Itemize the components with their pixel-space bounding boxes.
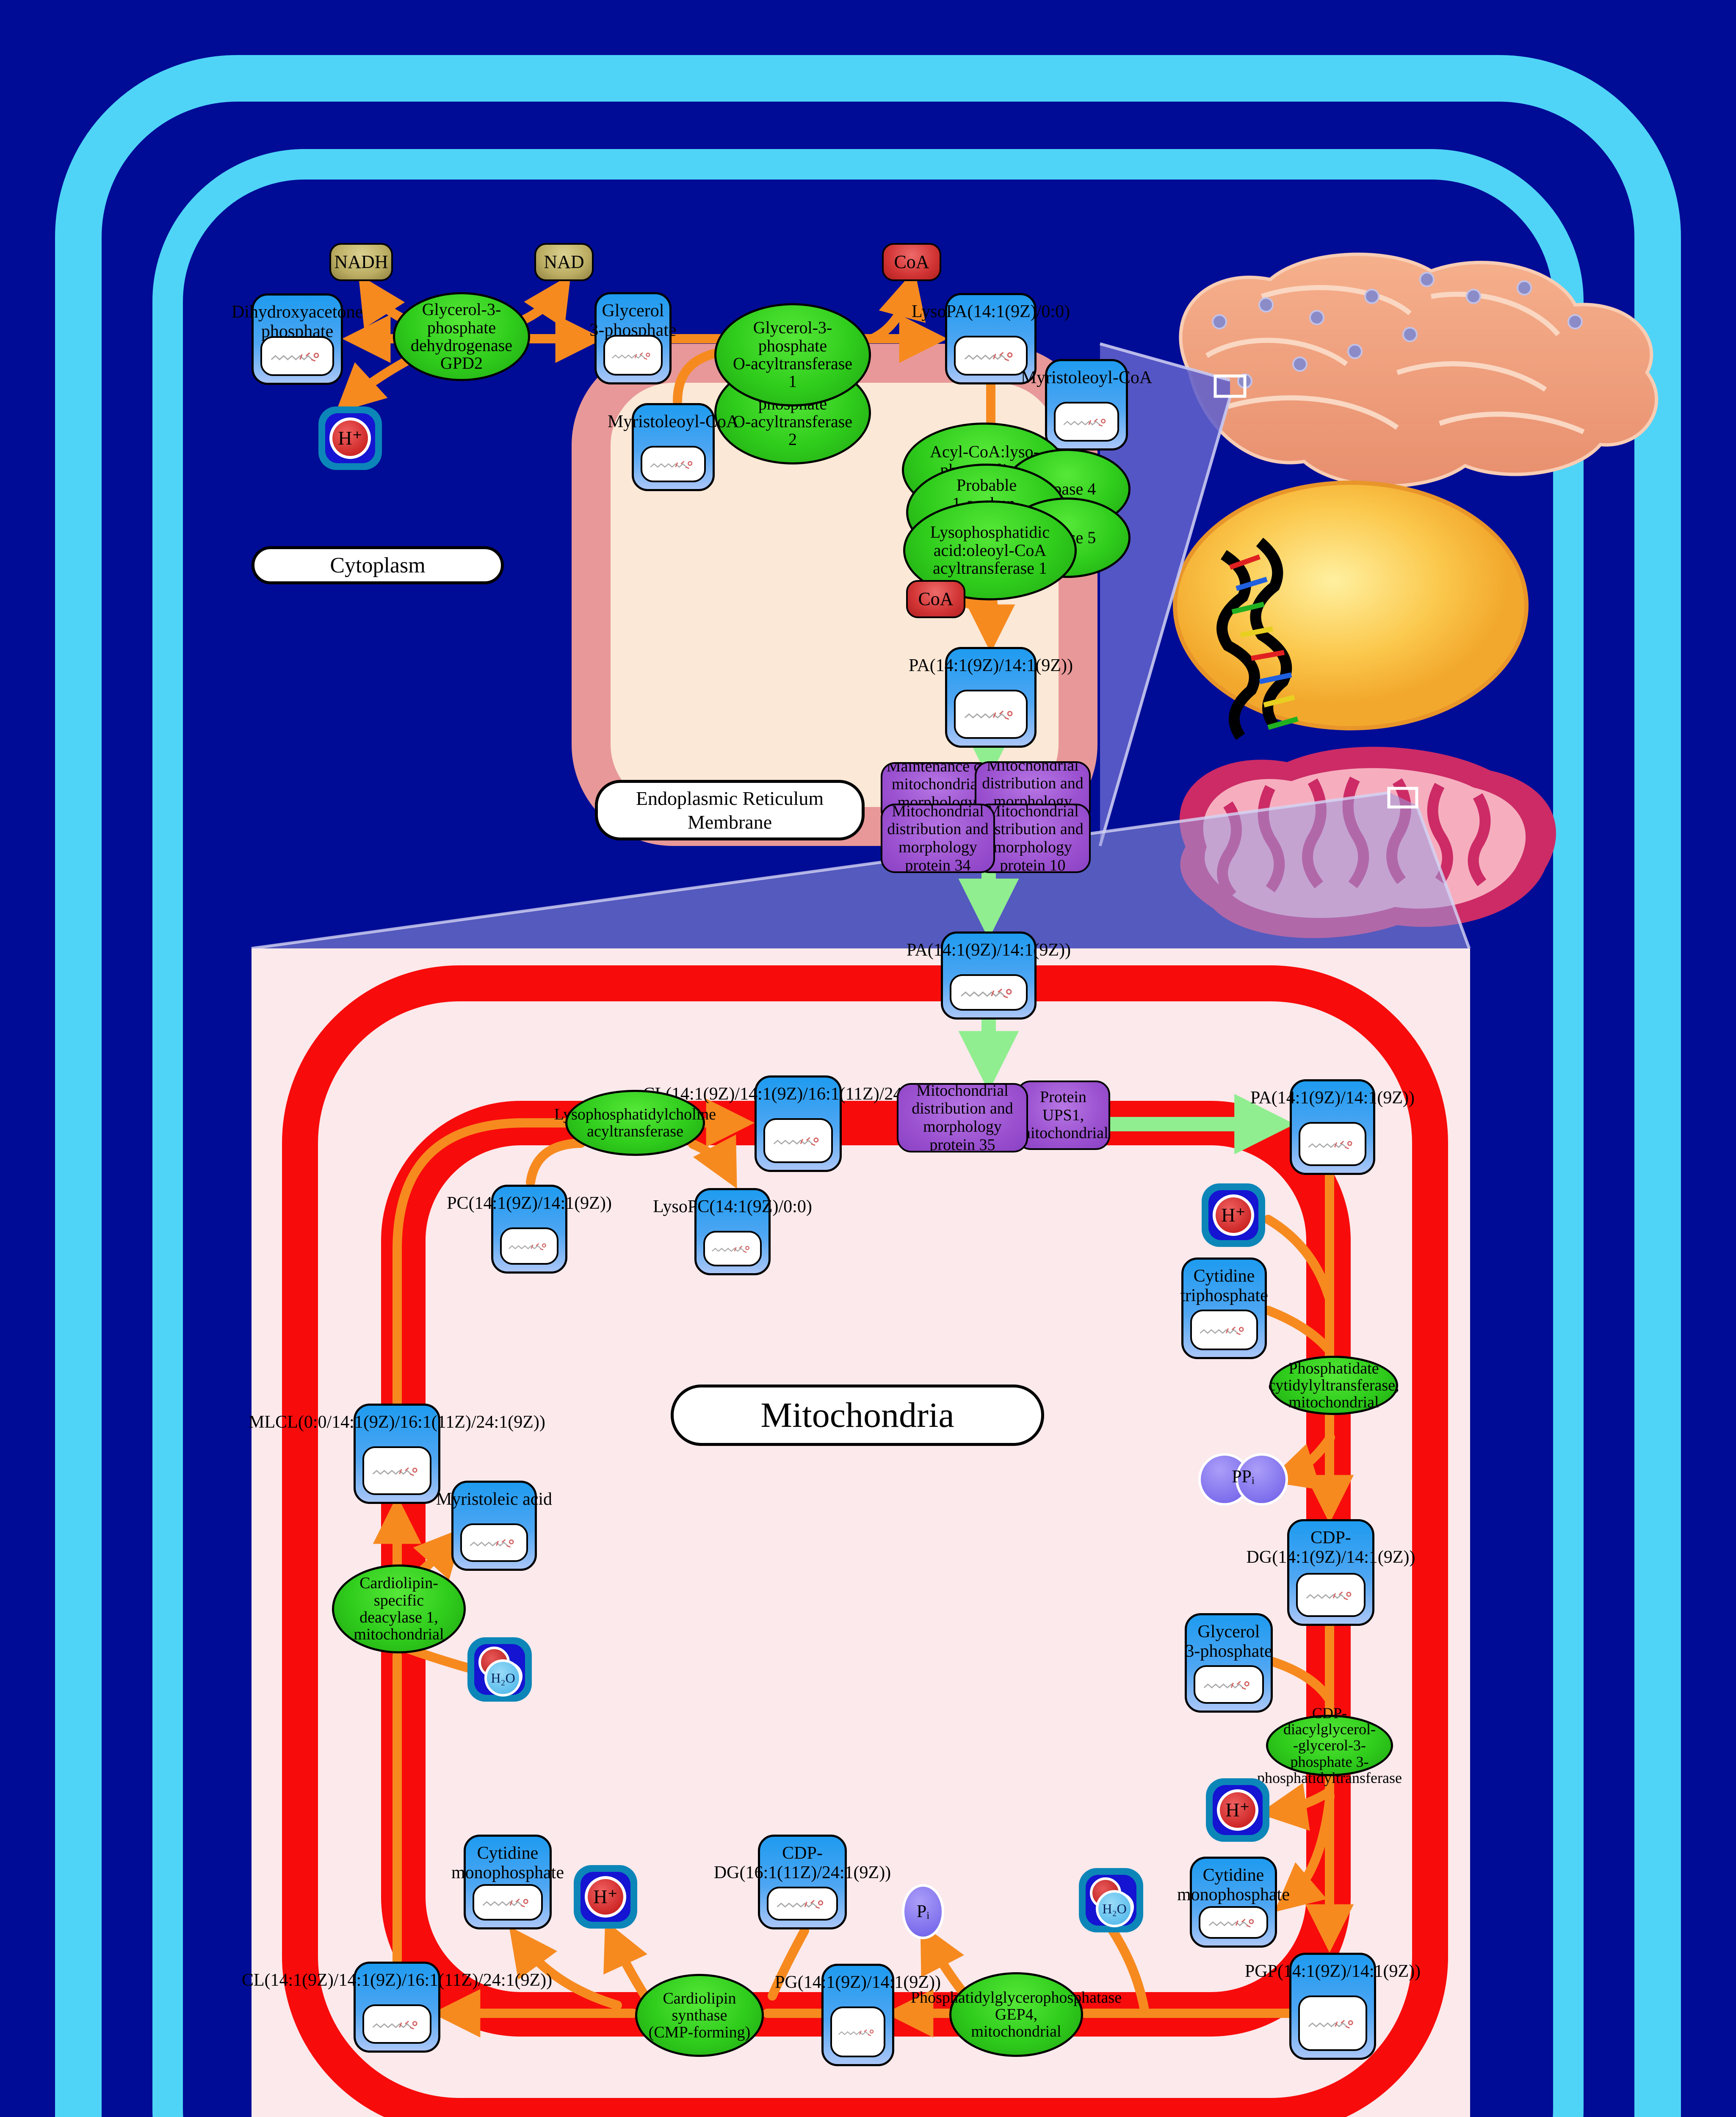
molecule-structure-icon — [767, 1887, 838, 1921]
molecule-structure-icon — [1054, 402, 1119, 442]
compound-ctp[interactable]: Cytidine triphosphate — [1181, 1257, 1267, 1359]
compound-pc-label: PC(14:1(9Z)/14:1(9Z)) — [447, 1194, 612, 1213]
molecule-structure-icon — [362, 1446, 431, 1495]
enzyme-tamm41-label: Phosphatidate cytidylyltransferase, mito… — [1268, 1360, 1399, 1411]
cytoplasm-label-pill: Cytoplasm — [252, 546, 504, 584]
h-plus-badge-cytosol[interactable]: H⁺ — [318, 406, 382, 470]
proton-icon: H⁺ — [1213, 1194, 1254, 1236]
molecule-structure-icon — [473, 1884, 543, 1921]
molecule-structure-icon — [1296, 1573, 1366, 1617]
proton-icon: H⁺ — [329, 417, 371, 459]
compound-pc[interactable]: PC(14:1(9Z)/14:1(9Z)) — [491, 1185, 567, 1274]
compound-myr-coa-label: Myristoleoyl-CoA — [1021, 368, 1152, 387]
coa-label: CoA — [918, 590, 953, 608]
water-icon: H₂O — [1096, 1890, 1133, 1927]
nadh-badge[interactable]: NADH — [329, 243, 393, 281]
h-plus-badge-crls[interactable]: H⁺ — [574, 1865, 637, 1929]
compound-g3p-label: Glycerol 3-phosphate — [1185, 1622, 1272, 1661]
enzyme-gpat1[interactable]: Glycerol-3- phosphate O-acyltransferase … — [714, 303, 871, 406]
compound-pa-label: PA(14:1(9Z)/14:1(9Z)) — [909, 656, 1073, 675]
nad-label: NAD — [544, 253, 584, 271]
compound-g3p-cytosol[interactable]: Glycerol 3-phosphate — [594, 292, 672, 384]
enzyme-gpat1-label: Glycerol-3- phosphate O-acyltransferase … — [733, 319, 852, 391]
complex-ups1[interactable]: Protein UPS1, mitochondrial — [1016, 1081, 1110, 1150]
enzyme-pgs1[interactable]: CDP- diacylglycerol- -glycerol-3- phosph… — [1266, 1715, 1393, 1776]
compound-pa-label: PA(14:1(9Z)/14:1(9Z)) — [1250, 1088, 1415, 1108]
molecule-structure-icon — [260, 336, 334, 376]
enzyme-lpcat-label: Lysophosphatidylcholine acyltransferase — [554, 1106, 716, 1140]
compound-cl-label: CL(14:1(9Z)/14:1(9Z)/16:1(11Z)/24:1(9Z)) — [242, 1971, 552, 1990]
enzyme-pgs1-label: CDP- diacylglycerol- -glycerol-3- phosph… — [1257, 1705, 1402, 1786]
molecule-structure-icon — [830, 2006, 885, 2057]
compound-mlcl-label: MLCL(0:0/14:1(9Z)/16:1(11Z)/24:1(9Z)) — [249, 1412, 545, 1432]
compound-cmp-label: Cytidine monophosphate — [451, 1843, 564, 1882]
compound-pg-label: PG(14:1(9Z)/14:1(9Z)) — [775, 1973, 941, 1992]
enzyme-tamm41[interactable]: Phosphatidate cytidylyltransferase, mito… — [1269, 1356, 1398, 1415]
compound-myristoleoyl-coa-left[interactable]: Myristoleoyl-CoA — [632, 403, 715, 491]
compound-g3p-mito[interactable]: Glycerol 3-phosphate — [1185, 1613, 1273, 1713]
compound-cmp-label: Cytidine monophosphate — [1177, 1866, 1290, 1904]
compound-cmp-right[interactable]: Cytidine monophosphate — [1190, 1857, 1277, 1948]
molecule-structure-icon — [1199, 1906, 1268, 1939]
molecule-structure-icon — [763, 1118, 833, 1163]
complex-ups1-label: Protein UPS1, mitochondrial — [1018, 1088, 1108, 1142]
enzyme-cld1[interactable]: Cardiolipin- specific deacylase 1, mitoc… — [332, 1564, 466, 1653]
pathway-diagram: NADH NAD CoA Dihydroxyacetone phosphate … — [0, 0, 1736, 2117]
compound-myristoleic-acid[interactable]: Myristoleic acid — [451, 1481, 537, 1571]
proton-icon: H⁺ — [585, 1876, 626, 1918]
molecule-structure-icon — [1299, 1122, 1366, 1166]
h2o-badge-left[interactable]: H₂O — [467, 1637, 532, 1702]
enzyme-crls-label: Cardiolipin synthase (CMP-forming) — [649, 1990, 751, 2041]
compound-cmp-left[interactable]: Cytidine monophosphate — [464, 1835, 552, 1929]
compound-lysopc-label: LysoPC(14:1(9Z)/0:0) — [653, 1197, 812, 1216]
compound-cdp-dg-right[interactable]: CDP- DG(14:1(9Z)/14:1(9Z)) — [1287, 1519, 1374, 1626]
compound-g3p-label: Glycerol 3-phosphate — [589, 301, 676, 340]
compound-lysopa-label: LysoPA(14:1(9Z)/0:0) — [912, 302, 1070, 321]
compound-myristoleic-label: Myristoleic acid — [436, 1490, 552, 1509]
complex-mdm34[interactable]: Mitochondrial distribution and morpholog… — [881, 804, 995, 873]
nadh-label: NADH — [334, 253, 388, 271]
compound-pg[interactable]: PG(14:1(9Z)/14:1(9Z)) — [821, 1964, 894, 2066]
enzyme-gpd2[interactable]: Glycerol-3- phosphate dehydrogenase GPD2 — [393, 292, 530, 381]
compound-pgp-label: PGP(14:1(9Z)/14:1(9Z)) — [1245, 1962, 1421, 1981]
ppi-label: PPᵢ — [1198, 1468, 1288, 1486]
enzyme-gep4-label: Phosphatidylglycerophosphatase GEP4, mit… — [911, 1989, 1122, 2040]
enzyme-cld1-label: Cardiolipin- specific deacylase 1, mitoc… — [354, 1575, 444, 1643]
ppi-badge[interactable]: PPᵢ — [1198, 1453, 1288, 1501]
molecule-structure-icon — [641, 446, 706, 482]
enzyme-gep4[interactable]: Phosphatidylglycerophosphatase GEP4, mit… — [949, 1972, 1083, 2057]
compound-cdp-dg-label: CDP- DG(14:1(9Z)/14:1(9Z)) — [1247, 1528, 1415, 1567]
molecule-structure-icon — [950, 974, 1028, 1011]
compound-ctp-label: Cytidine triphosphate — [1180, 1266, 1268, 1305]
compound-pgp[interactable]: PGP(14:1(9Z)/14:1(9Z)) — [1289, 1953, 1376, 2060]
compound-pa-label: PA(14:1(9Z)/14:1(9Z)) — [907, 940, 1071, 960]
mitochondria-label: Mitochondria — [760, 1395, 954, 1436]
complex-mdm35[interactable]: Mitochondrial distribution and morpholog… — [897, 1083, 1028, 1152]
cytoplasm-label: Cytoplasm — [330, 553, 425, 578]
nad-badge[interactable]: NAD — [534, 243, 594, 281]
compound-pa-er[interactable]: PA(14:1(9Z)/14:1(9Z)) — [945, 647, 1037, 748]
coa-badge-1[interactable]: CoA — [882, 243, 941, 281]
molecule-structure-icon — [703, 1231, 762, 1266]
er-membrane-label-pill: Endoplasmic Reticulum Membrane — [595, 780, 865, 840]
molecule-structure-icon — [954, 336, 1028, 376]
molecule-structure-icon — [1194, 1665, 1264, 1704]
compound-mlcl[interactable]: MLCL(0:0/14:1(9Z)/16:1(11Z)/24:1(9Z)) — [354, 1404, 440, 1504]
molecule-structure-icon — [954, 690, 1028, 739]
molecule-structure-icon — [500, 1227, 558, 1265]
er-membrane-label: Endoplasmic Reticulum Membrane — [636, 787, 824, 833]
enzyme-lpcat[interactable]: Lysophosphatidylcholine acyltransferase — [565, 1090, 705, 1156]
compound-dhap[interactable]: Dihydroxyacetone phosphate — [252, 293, 343, 385]
compound-cl-bottom[interactable]: CL(14:1(9Z)/14:1(9Z)/16:1(11Z)/24:1(9Z)) — [354, 1962, 440, 2053]
compound-myr-coa-label: Myristoleoyl-CoA — [608, 412, 739, 431]
h-plus-badge-ctp[interactable]: H⁺ — [1202, 1183, 1265, 1247]
pi-label: Pᵢ — [917, 1903, 929, 1921]
enzyme-lpaat1-label: Lysophosphatidic acid:oleoyl-CoA acyltra… — [930, 523, 1050, 577]
compound-pa-ims[interactable]: PA(14:1(9Z)/14:1(9Z)) — [941, 931, 1037, 1020]
compound-pa-matrix[interactable]: PA(14:1(9Z)/14:1(9Z)) — [1290, 1079, 1375, 1175]
coa-label: CoA — [894, 253, 929, 271]
pi-badge[interactable]: Pᵢ — [902, 1884, 944, 1939]
h2o-badge-right[interactable]: H₂O — [1079, 1868, 1143, 1932]
compound-cdp-dg-label: CDP- DG(16:1(11Z)/24:1(9Z)) — [714, 1843, 891, 1882]
molecule-structure-icon — [362, 2004, 431, 2044]
compound-dhap-label: Dihydroxyacetone phosphate — [232, 302, 363, 341]
mitochondria-label-pill: Mitochondria — [671, 1385, 1044, 1446]
molecule-structure-icon — [1298, 1995, 1367, 2051]
molecule-structure-icon — [460, 1523, 528, 1562]
compound-cdp-dg-left[interactable]: CDP- DG(16:1(11Z)/24:1(9Z)) — [758, 1835, 847, 1929]
molecule-structure-icon — [1190, 1310, 1258, 1350]
complex-mdm35-label: Mitochondrial distribution and morpholog… — [898, 1083, 1026, 1152]
compound-lysopc[interactable]: LysoPC(14:1(9Z)/0:0) — [694, 1188, 771, 1275]
enzyme-crls[interactable]: Cardiolipin synthase (CMP-forming) — [635, 1974, 764, 2057]
molecule-structure-icon — [603, 335, 663, 376]
h-plus-badge-pgs1[interactable]: H⁺ — [1206, 1778, 1269, 1842]
water-icon: H₂O — [484, 1659, 522, 1697]
enzyme-gpd2-label: Glycerol-3- phosphate dehydrogenase GPD2 — [411, 301, 512, 373]
coa-badge-2[interactable]: CoA — [906, 580, 965, 618]
compound-myristoleoyl-coa-right[interactable]: Myristoleoyl-CoA — [1045, 359, 1128, 450]
complex-mdm34-label: Mitochondrial distribution and morpholog… — [882, 804, 993, 873]
proton-icon: H⁺ — [1217, 1789, 1258, 1831]
compound-cl-top[interactable]: CL(14:1(9Z)/14:1(9Z)/16:1(11Z)/24:1(9Z)) — [755, 1075, 842, 1172]
